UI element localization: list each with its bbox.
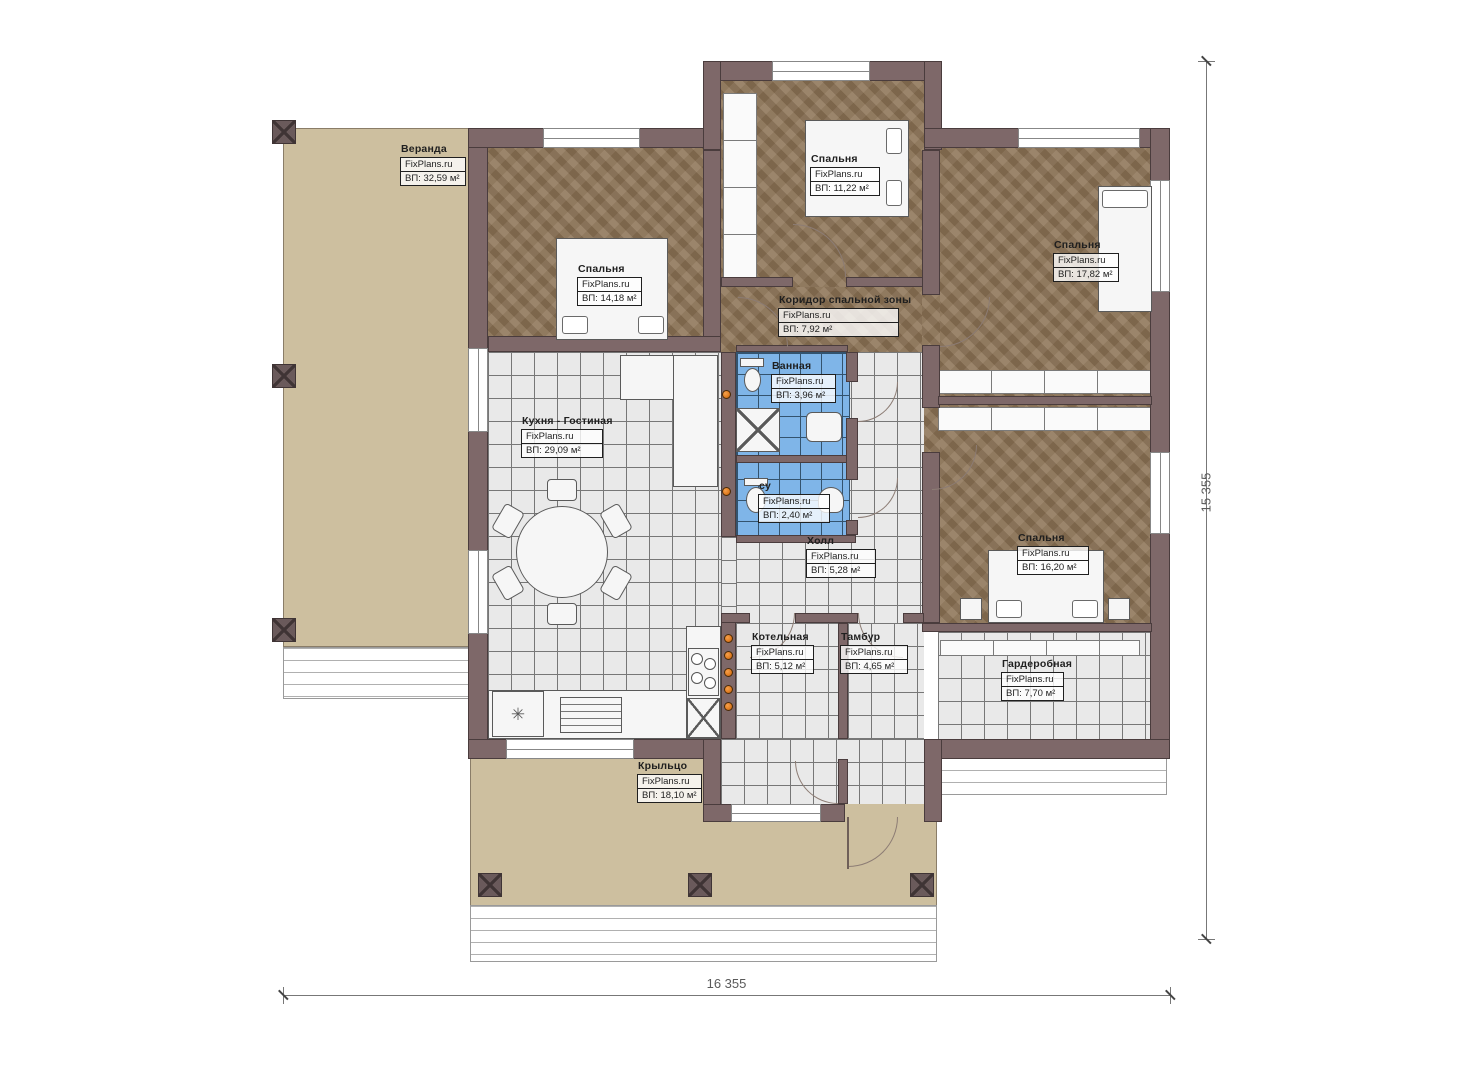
wall-hall-bottom-a [721, 613, 750, 623]
room-name: Крыльцо [638, 760, 702, 772]
stove-burner [704, 658, 716, 670]
room-area: ВП: 32,59 м² [401, 172, 465, 185]
room-label-bedroom2: Спальня FixPlans.ru ВП: 11,22 м² [810, 153, 880, 196]
wall-bath-right-c [846, 520, 858, 535]
kitchen-pass-floor [721, 537, 736, 613]
room-area: ВП: 4,65 м² [841, 660, 907, 673]
watermark: FixPlans.ru [578, 278, 641, 292]
dining-chair [547, 603, 577, 625]
wall-vent [724, 685, 733, 694]
room-label-hall: Холл FixPlans.ru ВП: 5,28 м² [806, 535, 876, 578]
room-label-bedroom3: Спальня FixPlans.ru ВП: 17,82 м² [1053, 239, 1119, 282]
wall-vent [724, 651, 733, 660]
window-kitchen-bottom [506, 739, 634, 759]
room-label-kitchen: Кухня - Гостиная FixPlans.ru ВП: 29,09 м… [521, 415, 613, 458]
watermark: FixPlans.ru [841, 646, 907, 660]
watermark: FixPlans.ru [811, 168, 879, 182]
toilet-tank-bath [740, 358, 764, 367]
room-info-box: FixPlans.ru ВП: 29,09 м² [521, 429, 603, 458]
porch-post [478, 873, 502, 897]
room-info-box: FixPlans.ru ВП: 2,40 м² [758, 494, 830, 523]
wall-entry-right [924, 739, 942, 822]
nightstand [1108, 598, 1130, 620]
room-info-box: FixPlans.ru ВП: 3,96 м² [771, 374, 836, 403]
watermark: FixPlans.ru [522, 430, 602, 444]
wall-vent [724, 668, 733, 677]
wall-block-left [703, 61, 721, 150]
room-name: Спальня [1018, 532, 1089, 544]
floor-plan: ✳ Веранда FixPlans.ru ВП: 32,59 м² [0, 0, 1473, 1080]
room-area: ВП: 18,10 м² [638, 789, 701, 802]
room-area: ВП: 7,92 м² [779, 323, 898, 336]
stove-burner [704, 677, 716, 689]
room-name: Тамбур [841, 631, 908, 643]
wall-hall-bottom-b [795, 613, 858, 623]
wall-entry-divider [838, 759, 848, 804]
veranda-post [272, 120, 296, 144]
watermark: FixPlans.ru [752, 646, 813, 660]
room-label-tambour: Тамбур FixPlans.ru ВП: 4,65 м² [840, 631, 908, 674]
window-bedroom3-top [1018, 128, 1140, 148]
pillow [562, 316, 588, 334]
wardrobe-bedroom2 [723, 93, 757, 285]
wall-vent [722, 390, 731, 399]
porch-post [910, 873, 934, 897]
room-area: ВП: 5,28 м² [807, 564, 875, 577]
room-info-box: FixPlans.ru ВП: 11,22 м² [810, 167, 880, 196]
watermark: FixPlans.ru [1018, 547, 1088, 561]
room-info-box: FixPlans.ru ВП: 7,70 м² [1001, 672, 1064, 701]
room-area: ВП: 7,70 м² [1002, 687, 1063, 700]
watermark: FixPlans.ru [779, 309, 898, 323]
room-info-box: FixPlans.ru ВП: 17,82 м² [1053, 253, 1119, 282]
room-name: Кухня - Гостиная [522, 415, 613, 427]
porch-steps [470, 905, 937, 962]
snowflake-icon: ✳ [511, 705, 525, 724]
window-kitchen-left-1 [468, 348, 488, 432]
room-name: Гардеробная [1002, 658, 1072, 670]
room-area: ВП: 17,82 м² [1054, 268, 1118, 281]
stove-burner [691, 653, 703, 665]
wall-kitchen-right-a [721, 352, 736, 537]
room-name: Котельная [752, 631, 814, 643]
watermark: FixPlans.ru [759, 495, 829, 509]
wall-vent [722, 487, 731, 496]
room-label-boiler: Котельная FixPlans.ru ВП: 5,12 м² [751, 631, 814, 674]
nightstand [960, 598, 982, 620]
porch-post [688, 873, 712, 897]
wall-bed2-bottom-a [721, 277, 793, 287]
watermark: FixPlans.ru [638, 775, 701, 789]
room-label-bathroom: Ванная FixPlans.ru ВП: 3,96 м² [771, 360, 836, 403]
shower-tray [736, 408, 780, 452]
room-name: Спальня [1054, 239, 1119, 251]
wall-left [468, 128, 488, 759]
room-label-bedroom4: Спальня FixPlans.ru ВП: 16,20 м² [1017, 532, 1089, 575]
kitchen-sink [687, 698, 720, 738]
room-info-box: FixPlans.ru ВП: 16,20 м² [1017, 546, 1089, 575]
veranda-floor [283, 128, 475, 647]
room-name: Холл [807, 535, 876, 547]
stove-burner [691, 672, 703, 684]
room-info-box: FixPlans.ru ВП: 32,59 м² [400, 157, 466, 186]
window-kitchen-left-2 [468, 550, 488, 634]
room-info-box: FixPlans.ru ВП: 7,92 м² [778, 308, 899, 337]
room-area: ВП: 5,12 м² [752, 660, 813, 673]
veranda-post [272, 618, 296, 642]
window-bedroom1 [543, 128, 640, 148]
veranda-steps [283, 647, 475, 699]
wall-bottom-right [924, 739, 1170, 759]
sofa-corner-side [673, 355, 718, 487]
room-area: ВП: 11,22 м² [811, 182, 879, 195]
room-name: су [759, 480, 830, 492]
bath-sink [806, 412, 842, 442]
watermark: FixPlans.ru [1054, 254, 1118, 268]
room-name: Спальня [578, 263, 642, 275]
wardrobe-bedroom4 [938, 407, 1152, 431]
wall-bed2-bottom-b [846, 277, 924, 287]
watermark: FixPlans.ru [401, 158, 465, 172]
room-label-su: су FixPlans.ru ВП: 2,40 м² [758, 480, 830, 523]
room-info-box: FixPlans.ru ВП: 4,65 м² [840, 645, 908, 674]
wall-vent [724, 702, 733, 711]
wardrobe-bedroom3 [938, 370, 1152, 394]
room-name: Веранда [401, 143, 466, 155]
room-label-corridor: Коридор спальной зоны FixPlans.ru ВП: 7,… [778, 294, 911, 337]
room-area: ВП: 29,09 м² [522, 444, 602, 457]
room-name: Ванная [772, 360, 836, 372]
pillow [886, 180, 902, 206]
room-name: Спальня [811, 153, 880, 165]
window-entry [731, 804, 821, 822]
pillow [1102, 190, 1148, 208]
watermark: FixPlans.ru [807, 550, 875, 564]
wall-vent [724, 634, 733, 643]
window-bedroom2 [772, 61, 870, 81]
dimension-height-label: 15 355 [1199, 463, 1214, 523]
room-area: ВП: 14,18 м² [578, 292, 641, 305]
dimension-width-label: 16 355 [283, 976, 1170, 991]
room-name: Коридор спальной зоны [779, 294, 911, 306]
wall-bath-right-b [846, 418, 858, 480]
toilet-bowl-bath [744, 368, 761, 392]
room-label-veranda: Веранда FixPlans.ru ВП: 32,59 м² [400, 143, 466, 186]
wall-bath-right-a [846, 352, 858, 382]
dining-chair [547, 479, 577, 501]
room-area: ВП: 2,40 м² [759, 509, 829, 522]
entrance-door-leaf [847, 817, 849, 869]
room-label-porch: Крыльцо FixPlans.ru ВП: 18,10 м² [637, 760, 702, 803]
veranda-post [272, 364, 296, 388]
dimension-width-line [283, 995, 1170, 996]
room-area: ВП: 3,96 м² [772, 389, 835, 402]
watermark: FixPlans.ru [772, 375, 835, 389]
dining-table [516, 506, 608, 598]
room-info-box: FixPlans.ru ВП: 5,12 м² [751, 645, 814, 674]
room-label-bedroom1: Спальня FixPlans.ru ВП: 14,18 м² [577, 263, 642, 306]
wall-bath-divider [736, 455, 848, 463]
wall-bed1-right [703, 150, 721, 352]
room-info-box: FixPlans.ru ВП: 5,28 м² [806, 549, 876, 578]
wall-bedrooms-left-a [922, 150, 940, 295]
wall-bed4-bottom [922, 623, 1152, 632]
watermark: FixPlans.ru [1002, 673, 1063, 687]
window-bedroom3-right [1150, 180, 1170, 292]
pillow [996, 600, 1022, 618]
room-info-box: FixPlans.ru ВП: 14,18 м² [577, 277, 642, 306]
wall-hall-bottom-c [903, 613, 924, 623]
wardrobe-room-shelf [940, 640, 1140, 656]
pillow [638, 316, 664, 334]
room-area: ВП: 16,20 м² [1018, 561, 1088, 574]
doorway-fill-1 [922, 295, 940, 345]
window-bedroom4-right [1150, 452, 1170, 534]
pillow [1072, 600, 1098, 618]
fridge: ✳ [492, 691, 544, 737]
room-info-box: FixPlans.ru ВП: 18,10 м² [637, 774, 702, 803]
wall-bed3-bed4 [938, 396, 1152, 405]
side-deck [940, 757, 1167, 795]
kitchen-drawers [560, 697, 622, 733]
room-label-wardrobe: Гардеробная FixPlans.ru ВП: 7,70 м² [1001, 658, 1072, 701]
pillow [886, 128, 902, 154]
